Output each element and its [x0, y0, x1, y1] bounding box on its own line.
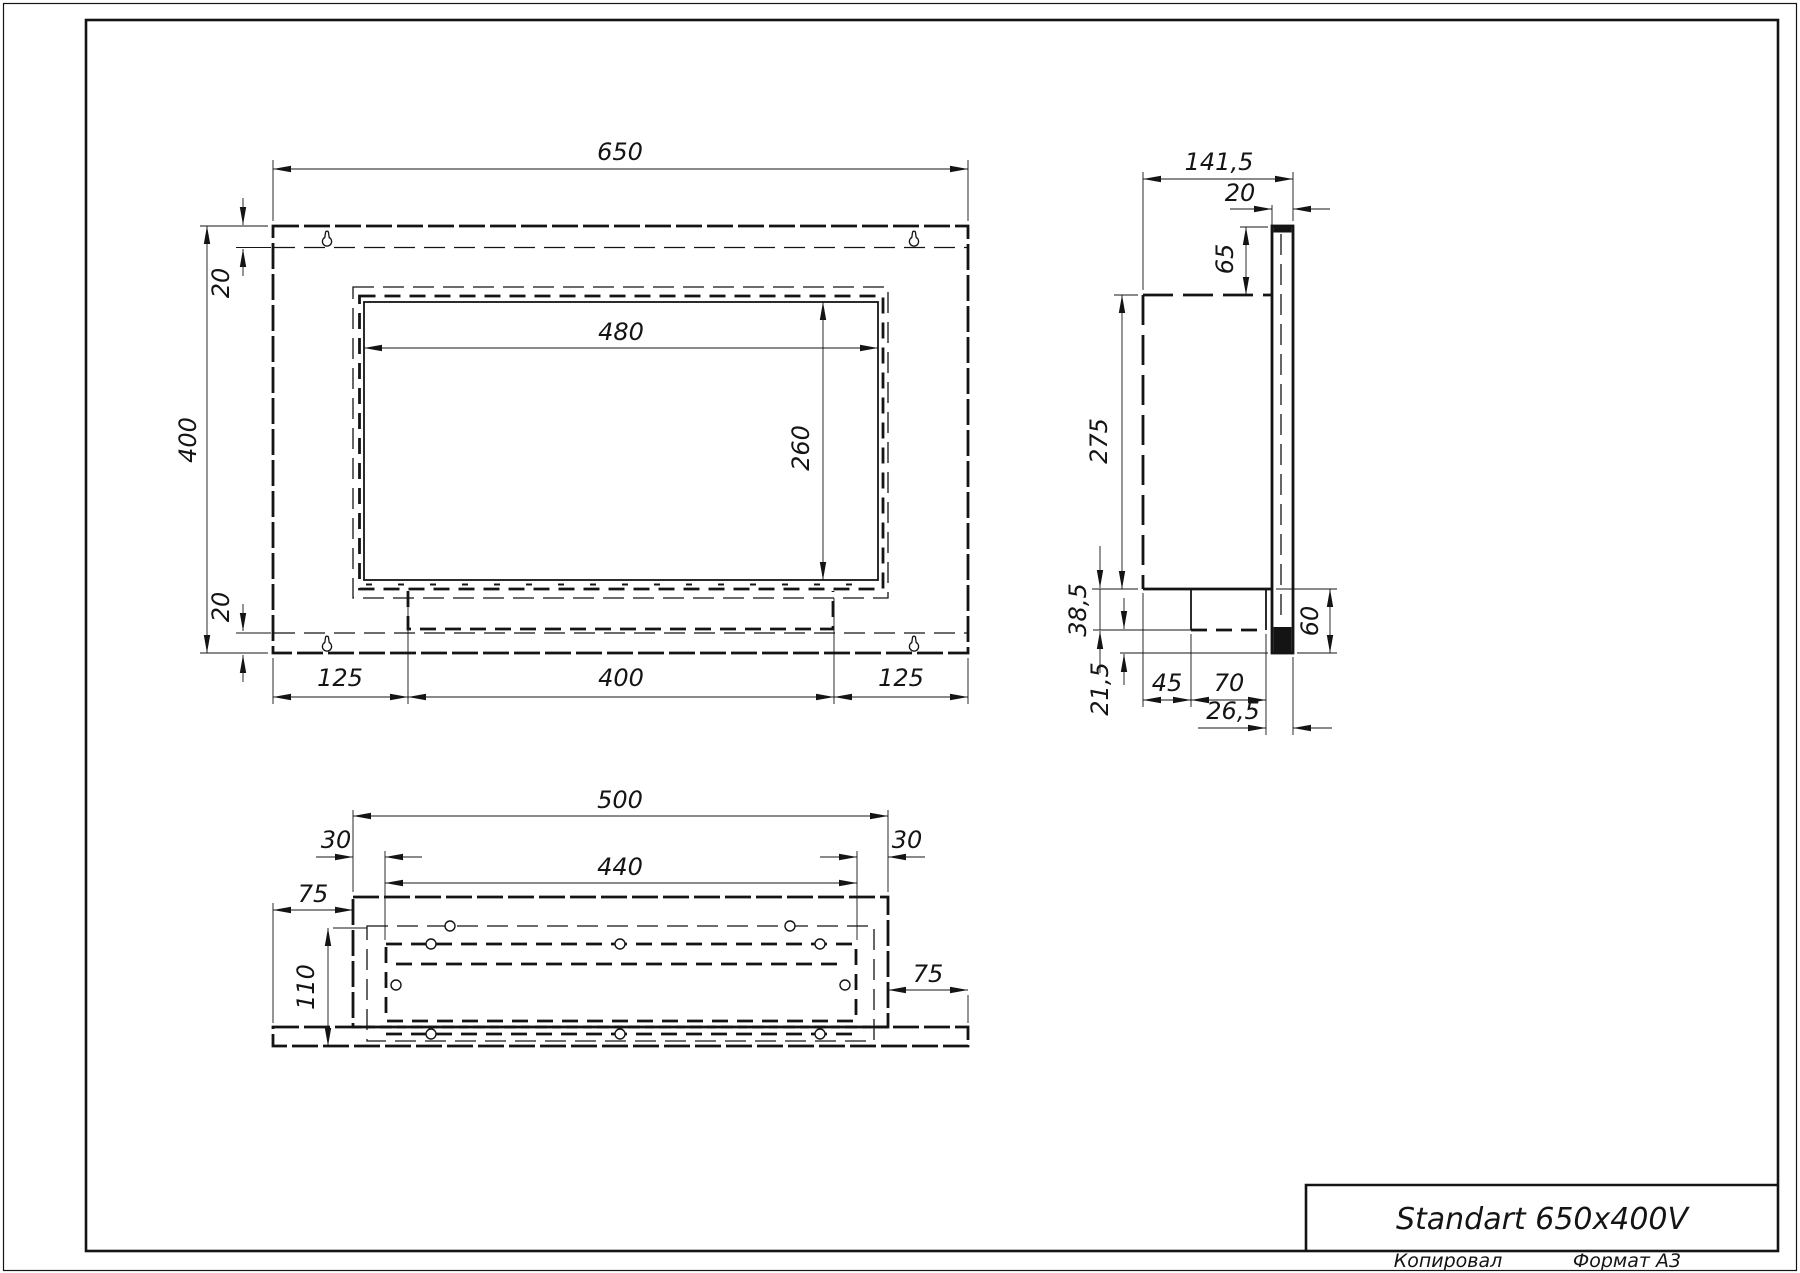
footer-format-label: Формат A3 — [1573, 1250, 1681, 1272]
bottom-view: 500 30 30 440 75 75 110 — [273, 786, 968, 1046]
side-flange-foot — [1274, 627, 1292, 652]
bottom-fixing-holes-part — [391, 980, 401, 990]
dim-bottom-casing-width: 500 — [597, 786, 643, 814]
dim-front-width: 650 — [597, 138, 643, 166]
keyhole-icon — [322, 231, 331, 246]
bottom-fixing-holes-part — [426, 939, 436, 949]
dim-side-flange: 20 — [1225, 179, 1256, 207]
front-view-dimensions: 650 400 20 20 480 260 12 — [174, 138, 968, 704]
drawing-sheet: 650 400 20 20 480 260 12 — [0, 0, 1800, 1273]
dim-bottom-flange-right: 75 — [913, 960, 944, 988]
dim-side-top-offset: 65 — [1211, 244, 1239, 275]
dim-bottom-left: 125 — [317, 664, 363, 692]
dim-side-body-height: 275 — [1085, 418, 1113, 464]
dim-bottom-depth: 110 — [292, 964, 320, 1010]
bottom-fixing-holes-part — [426, 1029, 436, 1039]
side-view-dimensions-part — [1093, 589, 1191, 630]
dim-bottom-inset-left: 30 — [321, 826, 352, 854]
front-view: 650 400 20 20 480 260 12 — [174, 138, 968, 704]
bottom-frame-hidden — [386, 944, 856, 1021]
keyhole-icon — [322, 636, 331, 651]
bottom-fixing-holes-part — [785, 921, 795, 931]
side-flange-cap — [1274, 227, 1292, 233]
dim-side-lower-height: 60 — [1296, 606, 1324, 637]
drawing-canvas: 650 400 20 20 480 260 12 — [0, 0, 1800, 1273]
bottom-casing-outline — [353, 897, 888, 1027]
side-view-dimensions: 141,5 20 65 275 38,5 21,5 — [1064, 148, 1337, 735]
dim-bottom-right: 125 — [878, 664, 924, 692]
bottom-fixing-holes-part — [445, 921, 455, 931]
inner-frame — [86, 20, 1778, 1251]
front-pedestal-hidden — [408, 591, 833, 629]
dim-bottom-flange-left: 75 — [298, 880, 329, 908]
bottom-fixing-holes-part — [615, 1029, 625, 1039]
dim-bottom-center: 400 — [598, 664, 644, 692]
bottom-fixing-holes-part — [615, 939, 625, 949]
dim-front-top-inset: 20 — [207, 268, 235, 299]
dim-side-base-depth: 70 — [1214, 669, 1245, 697]
dim-front-bottom-inset: 20 — [207, 592, 235, 623]
dim-side-bottom-offset: 21,5 — [1086, 662, 1114, 715]
dim-bottom-inset-right: 30 — [892, 826, 923, 854]
dim-side-front-clearance: 45 — [1152, 669, 1183, 697]
bottom-view-dimensions: 500 30 30 440 75 75 110 — [273, 786, 968, 1046]
dim-front-height: 400 — [174, 417, 202, 463]
dim-bottom-opening-width: 440 — [597, 853, 643, 881]
bottom-fixing-holes-part — [815, 939, 825, 949]
bottom-fixing-holes-part — [815, 1029, 825, 1039]
dim-opening-width: 480 — [598, 318, 644, 346]
footer-copied-label: Копировал — [1394, 1250, 1503, 1272]
keyhole-icon — [909, 231, 918, 246]
side-view: 141,5 20 65 275 38,5 21,5 — [1064, 148, 1337, 735]
dim-opening-height: 260 — [787, 425, 815, 471]
dim-side-depth: 141,5 — [1185, 148, 1254, 176]
title-block: Standart 650x400V Копировал Формат A3 — [1306, 1185, 1778, 1272]
dim-side-base-offset: 38,5 — [1064, 583, 1092, 636]
drawing-title: Standart 650x400V — [1396, 1202, 1691, 1237]
bottom-fixing-holes-part — [840, 980, 850, 990]
dim-side-rear-clearance: 26,5 — [1206, 697, 1259, 725]
keyhole-icon — [909, 636, 918, 651]
